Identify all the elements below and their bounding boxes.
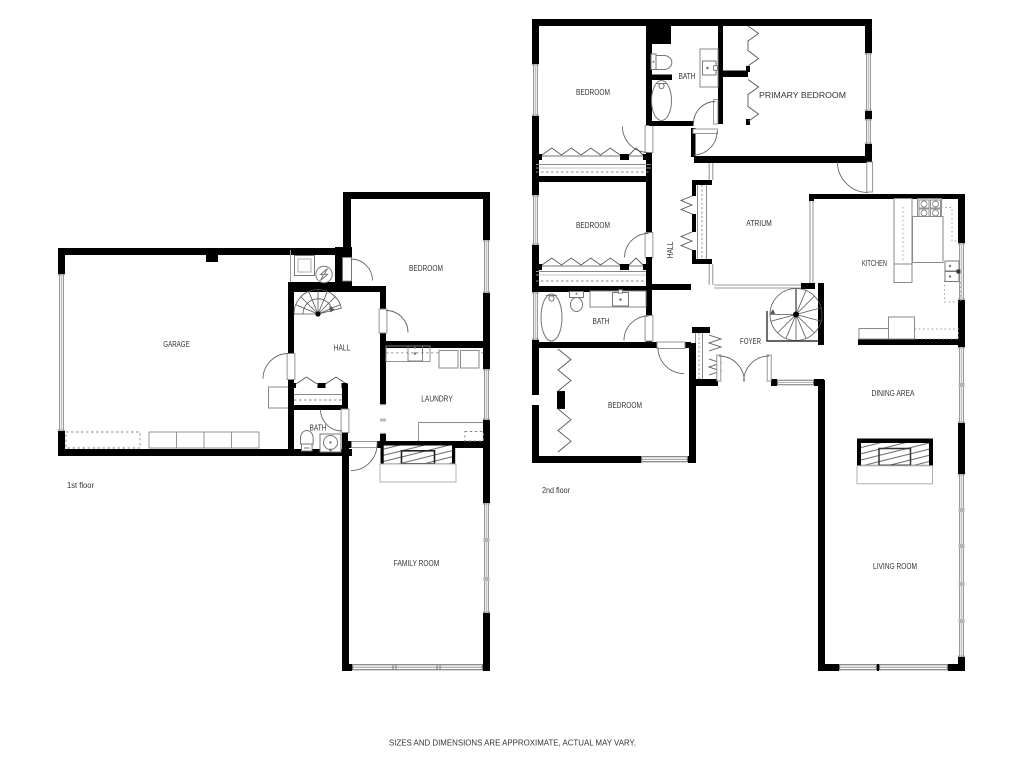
svg-text:ATRIUM: ATRIUM	[746, 219, 772, 228]
svg-text:HALL: HALL	[334, 344, 351, 353]
svg-text:1st floor: 1st floor	[67, 481, 94, 490]
svg-text:SIZES AND DIMENSIONS ARE APPRO: SIZES AND DIMENSIONS ARE APPROXIMATE, AC…	[389, 739, 636, 748]
svg-text:HALL: HALL	[666, 241, 675, 258]
svg-text:2nd floor: 2nd floor	[542, 486, 570, 495]
svg-text:LAUNDRY: LAUNDRY	[421, 395, 453, 404]
svg-text:GARAGE: GARAGE	[163, 340, 190, 349]
svg-text:PRIMARY BEDROOM: PRIMARY BEDROOM	[759, 91, 846, 100]
svg-text:FOYER: FOYER	[740, 337, 761, 346]
svg-text:BEDROOM: BEDROOM	[409, 264, 443, 273]
svg-text:BATH: BATH	[679, 72, 696, 81]
svg-text:KITCHEN: KITCHEN	[862, 259, 887, 268]
svg-text:BATH: BATH	[593, 317, 610, 326]
svg-text:BEDROOM: BEDROOM	[576, 221, 610, 230]
svg-text:BATH: BATH	[310, 424, 327, 433]
svg-text:BEDROOM: BEDROOM	[576, 88, 610, 97]
svg-text:FAMILY ROOM: FAMILY ROOM	[394, 559, 440, 568]
svg-text:LIVING ROOM: LIVING ROOM	[873, 562, 917, 571]
svg-text:DINING AREA: DINING AREA	[872, 389, 916, 398]
svg-text:BEDROOM: BEDROOM	[608, 401, 642, 410]
